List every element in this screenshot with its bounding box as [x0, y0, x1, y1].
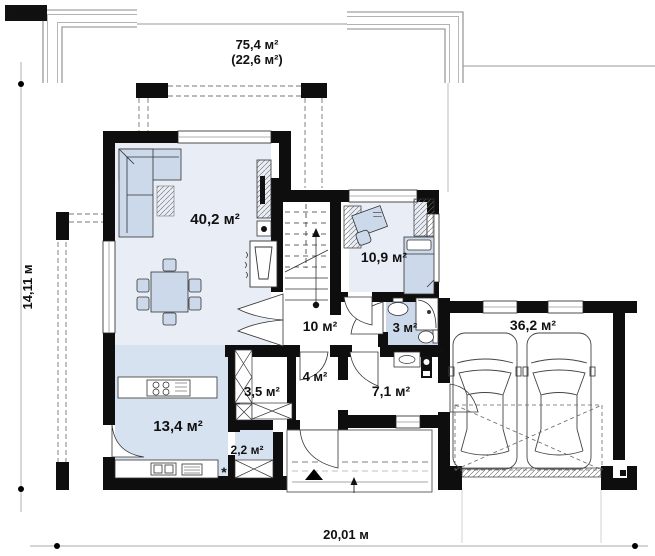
- window-living-left: [103, 241, 115, 333]
- room-label-bedroom: 10,9 м²: [361, 249, 407, 265]
- door-utility: [350, 352, 378, 386]
- room-label-living: 40,2 м²: [190, 211, 239, 228]
- garage-door-swing-area: [455, 405, 602, 470]
- entrance-porch: [287, 430, 432, 493]
- fireplace-icon: [245, 241, 277, 287]
- window-garage-2: [548, 301, 583, 313]
- pantry-shelf-icon: [235, 460, 273, 478]
- garage-contents: [449, 333, 602, 543]
- logo: Z500©: [5, 5, 47, 21]
- boiler-icon: [394, 352, 420, 367]
- room-label-pantry: 2,2 м²: [231, 443, 264, 457]
- kitchen-counter-bottom: [115, 460, 218, 478]
- room-label-utility: 7,1 м²: [372, 383, 411, 399]
- logo-text: Z500©: [9, 9, 42, 21]
- secondary-area-label: (22,6 м²): [231, 52, 283, 67]
- room-label-garage: 36,2 м²: [510, 317, 556, 333]
- stairs: [285, 204, 328, 308]
- dimension-bottom: 20,01 м: [30, 527, 648, 549]
- dimension-left: 14,11 м: [18, 62, 35, 512]
- room-label-hall: 10 м²: [303, 318, 338, 334]
- kitchen-counter-top: [118, 377, 217, 398]
- door-garage: [450, 384, 478, 412]
- rug-icon: [157, 186, 174, 216]
- tv-unit-icon: [257, 160, 271, 236]
- garage-corner-detail: [613, 466, 627, 478]
- window-utility: [396, 416, 420, 428]
- car-icon: [523, 333, 595, 469]
- window-garage-1: [483, 301, 517, 313]
- dimension-width-label: 20,01 м: [323, 527, 369, 542]
- floor-plan-page: *: [0, 0, 655, 556]
- floor-area-summary: 75,4 м² (22,6 м²): [231, 37, 283, 67]
- dimension-height-label: 14,11 м: [20, 264, 35, 309]
- room-label-vestibule: 4 м²: [303, 369, 328, 384]
- wardrobe-icon: [414, 199, 434, 236]
- room-label-wardrobe: 3,5 м²: [244, 384, 280, 399]
- room-label-bathroom: 3 м²: [393, 320, 418, 335]
- toilet-icon: [419, 330, 439, 343]
- bed-icon: [404, 237, 434, 294]
- window-bedroom-top: [349, 190, 417, 202]
- fridge-star-symbol: *: [221, 464, 227, 480]
- garage-door-icon: [462, 468, 601, 477]
- driveway: [462, 490, 601, 543]
- window-living-top: [178, 131, 271, 143]
- shower-icon: [416, 298, 438, 330]
- total-area-label: 75,4 м²: [236, 37, 280, 52]
- room-label-kitchen: 13,4 м²: [153, 418, 202, 435]
- floor-plan-drawing: *: [0, 0, 655, 556]
